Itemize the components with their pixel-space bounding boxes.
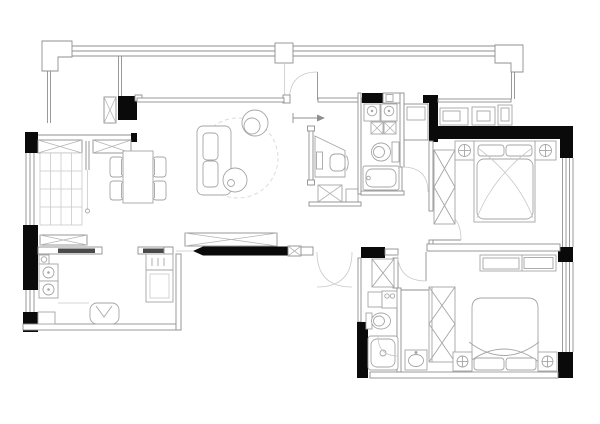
low-cabinet-band	[38, 135, 131, 153]
wall-kitchen-east	[176, 254, 181, 330]
storage-boxes	[371, 122, 396, 134]
desk-chair	[330, 154, 348, 171]
dresser-row	[440, 105, 512, 125]
wall-kitchen-south	[23, 324, 181, 330]
headboard-shelf	[480, 255, 556, 271]
column-black-nw	[118, 96, 137, 120]
wardrobe-1	[434, 150, 455, 224]
living-room	[197, 110, 278, 198]
section-arrow-icon	[293, 113, 325, 123]
swivel-armchair	[242, 110, 268, 136]
study-nook	[308, 126, 362, 206]
wall-bed1-bar	[437, 126, 573, 139]
dryer	[381, 104, 397, 121]
floor-plan-drawing	[0, 0, 600, 424]
grid-storage-cabinet	[40, 153, 82, 225]
wall-inner-north-right	[318, 98, 362, 102]
wall-bed1-south	[427, 244, 560, 251]
bed-2	[469, 298, 539, 372]
wall-bed1-west-black	[429, 95, 438, 142]
column-top-right	[495, 45, 523, 72]
sink-counter-2	[368, 291, 397, 308]
base-cabinet	[38, 312, 55, 324]
window-bed1-north	[438, 99, 511, 102]
sideboard	[40, 235, 87, 245]
nightstand-lamp	[455, 141, 474, 160]
refrigerator	[146, 254, 173, 302]
wall-west-mid	[23, 225, 38, 290]
bath1-door	[402, 167, 428, 192]
window-bed1-east	[563, 158, 574, 247]
hall-cabinet	[404, 104, 428, 140]
floor-plan-page	[0, 0, 600, 424]
wall-tick	[131, 133, 137, 142]
bedroom-2	[385, 249, 557, 372]
dining-table	[123, 151, 153, 203]
shower-stall	[368, 336, 398, 370]
wall-bed1-west	[429, 141, 433, 211]
stool	[90, 303, 119, 324]
column-top-left	[42, 41, 72, 71]
wall-bath2-west-upper	[358, 258, 361, 322]
stove	[39, 264, 58, 298]
nightstand-lamp	[453, 352, 472, 371]
wall-study-west	[309, 127, 313, 185]
wall-entry-east	[361, 247, 385, 258]
coffee-table	[223, 168, 247, 192]
bed-1	[474, 141, 535, 222]
toilet-1	[372, 142, 400, 162]
balcony-door	[283, 72, 318, 103]
hallway	[404, 104, 428, 140]
dining-room	[40, 151, 166, 245]
wall-study-south	[309, 202, 361, 206]
nightstand-lamp	[535, 141, 556, 160]
linen-closet	[372, 259, 394, 287]
wall-inner-north-left	[137, 98, 284, 102]
monitor	[317, 152, 323, 169]
study-cabinet	[318, 185, 358, 202]
vanity-basin	[405, 350, 427, 370]
bed2-door	[398, 252, 427, 281]
toilet-2	[366, 313, 391, 329]
wall-bath1-west	[358, 93, 361, 194]
wall-bath2-west-black	[357, 322, 368, 378]
nightstand-lamp	[538, 352, 557, 371]
kitchen-counter-north	[38, 247, 173, 254]
column-top-middle	[275, 43, 293, 63]
wall-south-bed2	[370, 372, 558, 378]
wall-west-window-upper	[26, 153, 34, 225]
entry	[288, 246, 385, 287]
wall-west-upper	[25, 132, 38, 153]
tv-wall	[176, 233, 288, 256]
wall-east-step	[560, 139, 573, 158]
washer	[364, 104, 380, 121]
wall-bath1-north	[362, 93, 383, 103]
kitchen	[38, 247, 173, 324]
sliding-door	[86, 141, 90, 213]
wall-south-living	[193, 247, 288, 256]
bathtub	[363, 166, 399, 190]
window-bed2-east	[563, 262, 574, 352]
entry-door-leaf-left	[317, 252, 352, 287]
wall-east-south	[558, 352, 573, 378]
wall-bath1-east-upper	[400, 93, 404, 167]
wall-west-window-lower	[26, 290, 34, 312]
bathroom-2	[366, 258, 401, 372]
entry-door-leaf-right	[317, 252, 352, 287]
wall-bath1-south	[361, 191, 404, 195]
wardrobe-2	[429, 287, 455, 362]
